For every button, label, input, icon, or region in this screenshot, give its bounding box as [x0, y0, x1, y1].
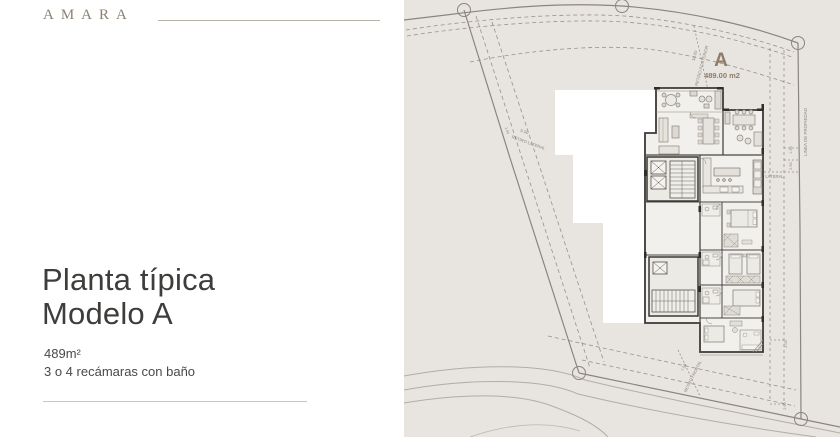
dim-200-b: 2.00	[783, 402, 787, 409]
unit-area: 489.00 m2	[704, 71, 740, 80]
core-stairs	[649, 257, 698, 316]
lateral-left-label: RETIRO LATERAL	[511, 134, 547, 151]
dim-150-right: 1.50	[789, 146, 793, 153]
brand-logo: AMARA	[43, 7, 134, 24]
frontal-dim: 7.50	[680, 362, 688, 372]
unit-label-group: A 489.00 m2	[704, 50, 740, 80]
bottom-divider	[43, 401, 307, 402]
property-line-label: LINEA DE PROPIEDAD	[803, 107, 808, 156]
page-title: Planta típica Modelo A	[42, 263, 215, 331]
site-plan-svg: A 489.00 m2 10.00 RETIRO POSTERIOR LINEA…	[404, 0, 840, 437]
title-line-2: Modelo A	[42, 297, 215, 331]
dim-200-a: 2.00	[784, 340, 788, 347]
core-elevators	[647, 157, 698, 201]
logo-divider	[158, 20, 380, 21]
title-line-1: Planta típica	[42, 263, 215, 297]
brochure-page: AMARA Planta típica Modelo A 489m² 3 o 4…	[0, 0, 840, 437]
dim-250-right: 2.50	[789, 162, 793, 169]
posterior-dim: 10.00	[691, 49, 699, 61]
floor-plan	[644, 87, 764, 355]
lateral-left-dim: 6.00	[520, 128, 530, 136]
unit-letter: A	[714, 50, 728, 71]
site-plan-panel: A 489.00 m2 10.00 RETIRO POSTERIOR LINEA…	[404, 0, 840, 437]
left-dim-150: 1.50	[504, 127, 510, 135]
area-label: 489m²	[44, 346, 81, 361]
info-panel: AMARA Planta típica Modelo A 489m² 3 o 4…	[0, 0, 404, 437]
bedrooms-label: 3 o 4 recámaras con baño	[44, 364, 195, 379]
